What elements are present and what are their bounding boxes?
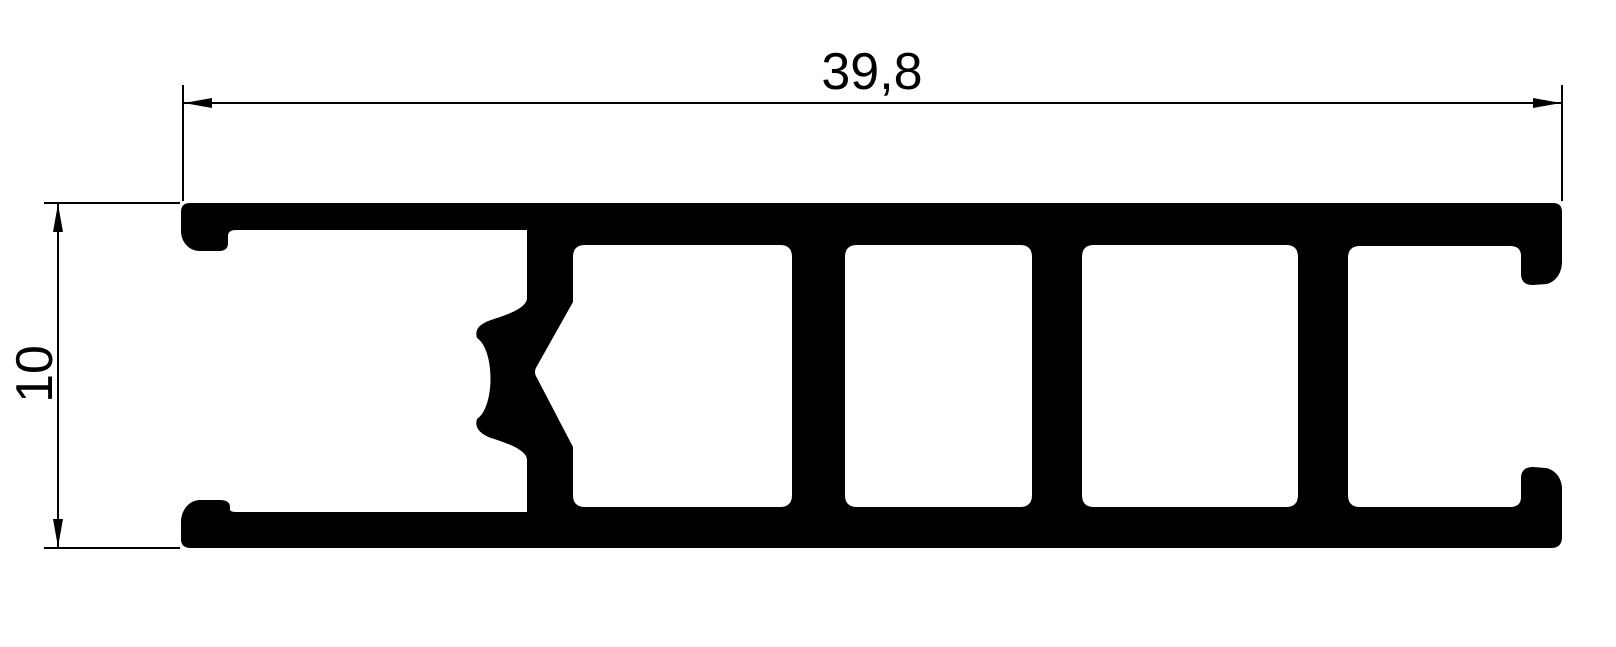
height-arrow-bottom-icon — [53, 519, 63, 547]
width-arrow-left-icon — [184, 98, 212, 108]
width-dimension-label: 39,8 — [821, 43, 922, 101]
height-dimension: 10 — [6, 203, 180, 548]
profile-cross-section-path — [181, 203, 1562, 548]
height-dimension-label: 10 — [6, 345, 64, 403]
drawing-canvas: 39,8 10 — [0, 0, 1616, 647]
height-arrow-top-icon — [53, 204, 63, 232]
width-dimension: 39,8 — [183, 43, 1562, 201]
profile-drawing: 39,8 10 — [0, 0, 1616, 647]
width-arrow-right-icon — [1533, 98, 1561, 108]
